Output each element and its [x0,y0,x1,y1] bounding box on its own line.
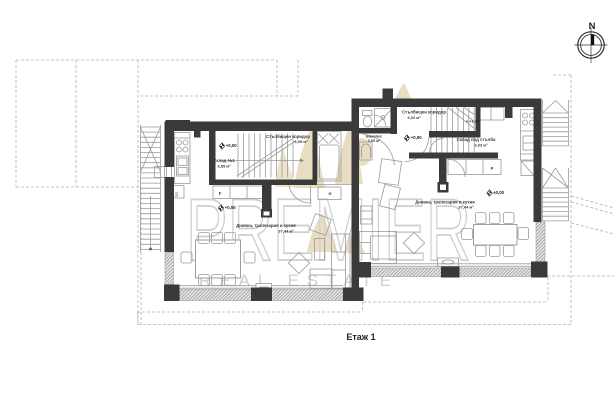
svg-text:Ф: Ф [328,192,331,196]
svg-text:3,85 м²: 3,85 м² [217,164,231,169]
svg-text:N: N [589,21,596,32]
svg-text:ZG: ZG [175,192,179,197]
svg-text:4,05 м²: 4,05 м² [294,139,308,144]
svg-text:Баня/wc: Баня/wc [366,134,383,139]
svg-text:Склад №1: Склад №1 [213,158,235,163]
svg-text:3,03 м²: 3,03 м² [474,143,488,148]
svg-text:37,44 м²: 37,44 м² [278,229,294,234]
svg-text:+0,50: +0,50 [225,205,236,210]
svg-text:× +1,40: × +1,40 [466,120,479,124]
svg-text:Дневна, трапезария и кухня: Дневна, трапезария и кухня [236,223,296,228]
svg-text:37,44 м²: 37,44 м² [458,205,474,210]
svg-text:3,65 м²: 3,65 м² [368,139,381,143]
svg-text:P: P [491,166,494,171]
svg-text:Склад под стълба: Склад под стълба [457,137,496,142]
svg-text:Етаж 1: Етаж 1 [346,332,375,342]
svg-text:+0,90: +0,90 [411,135,422,140]
svg-text:F: F [219,191,222,196]
svg-text:±0,00: ±0,00 [493,190,504,195]
svg-text:Стълбищен коридор: Стълбищен коридор [402,110,446,115]
svg-text:+0,00: +0,00 [226,143,237,148]
svg-text:4,02 м²: 4,02 м² [407,115,421,120]
